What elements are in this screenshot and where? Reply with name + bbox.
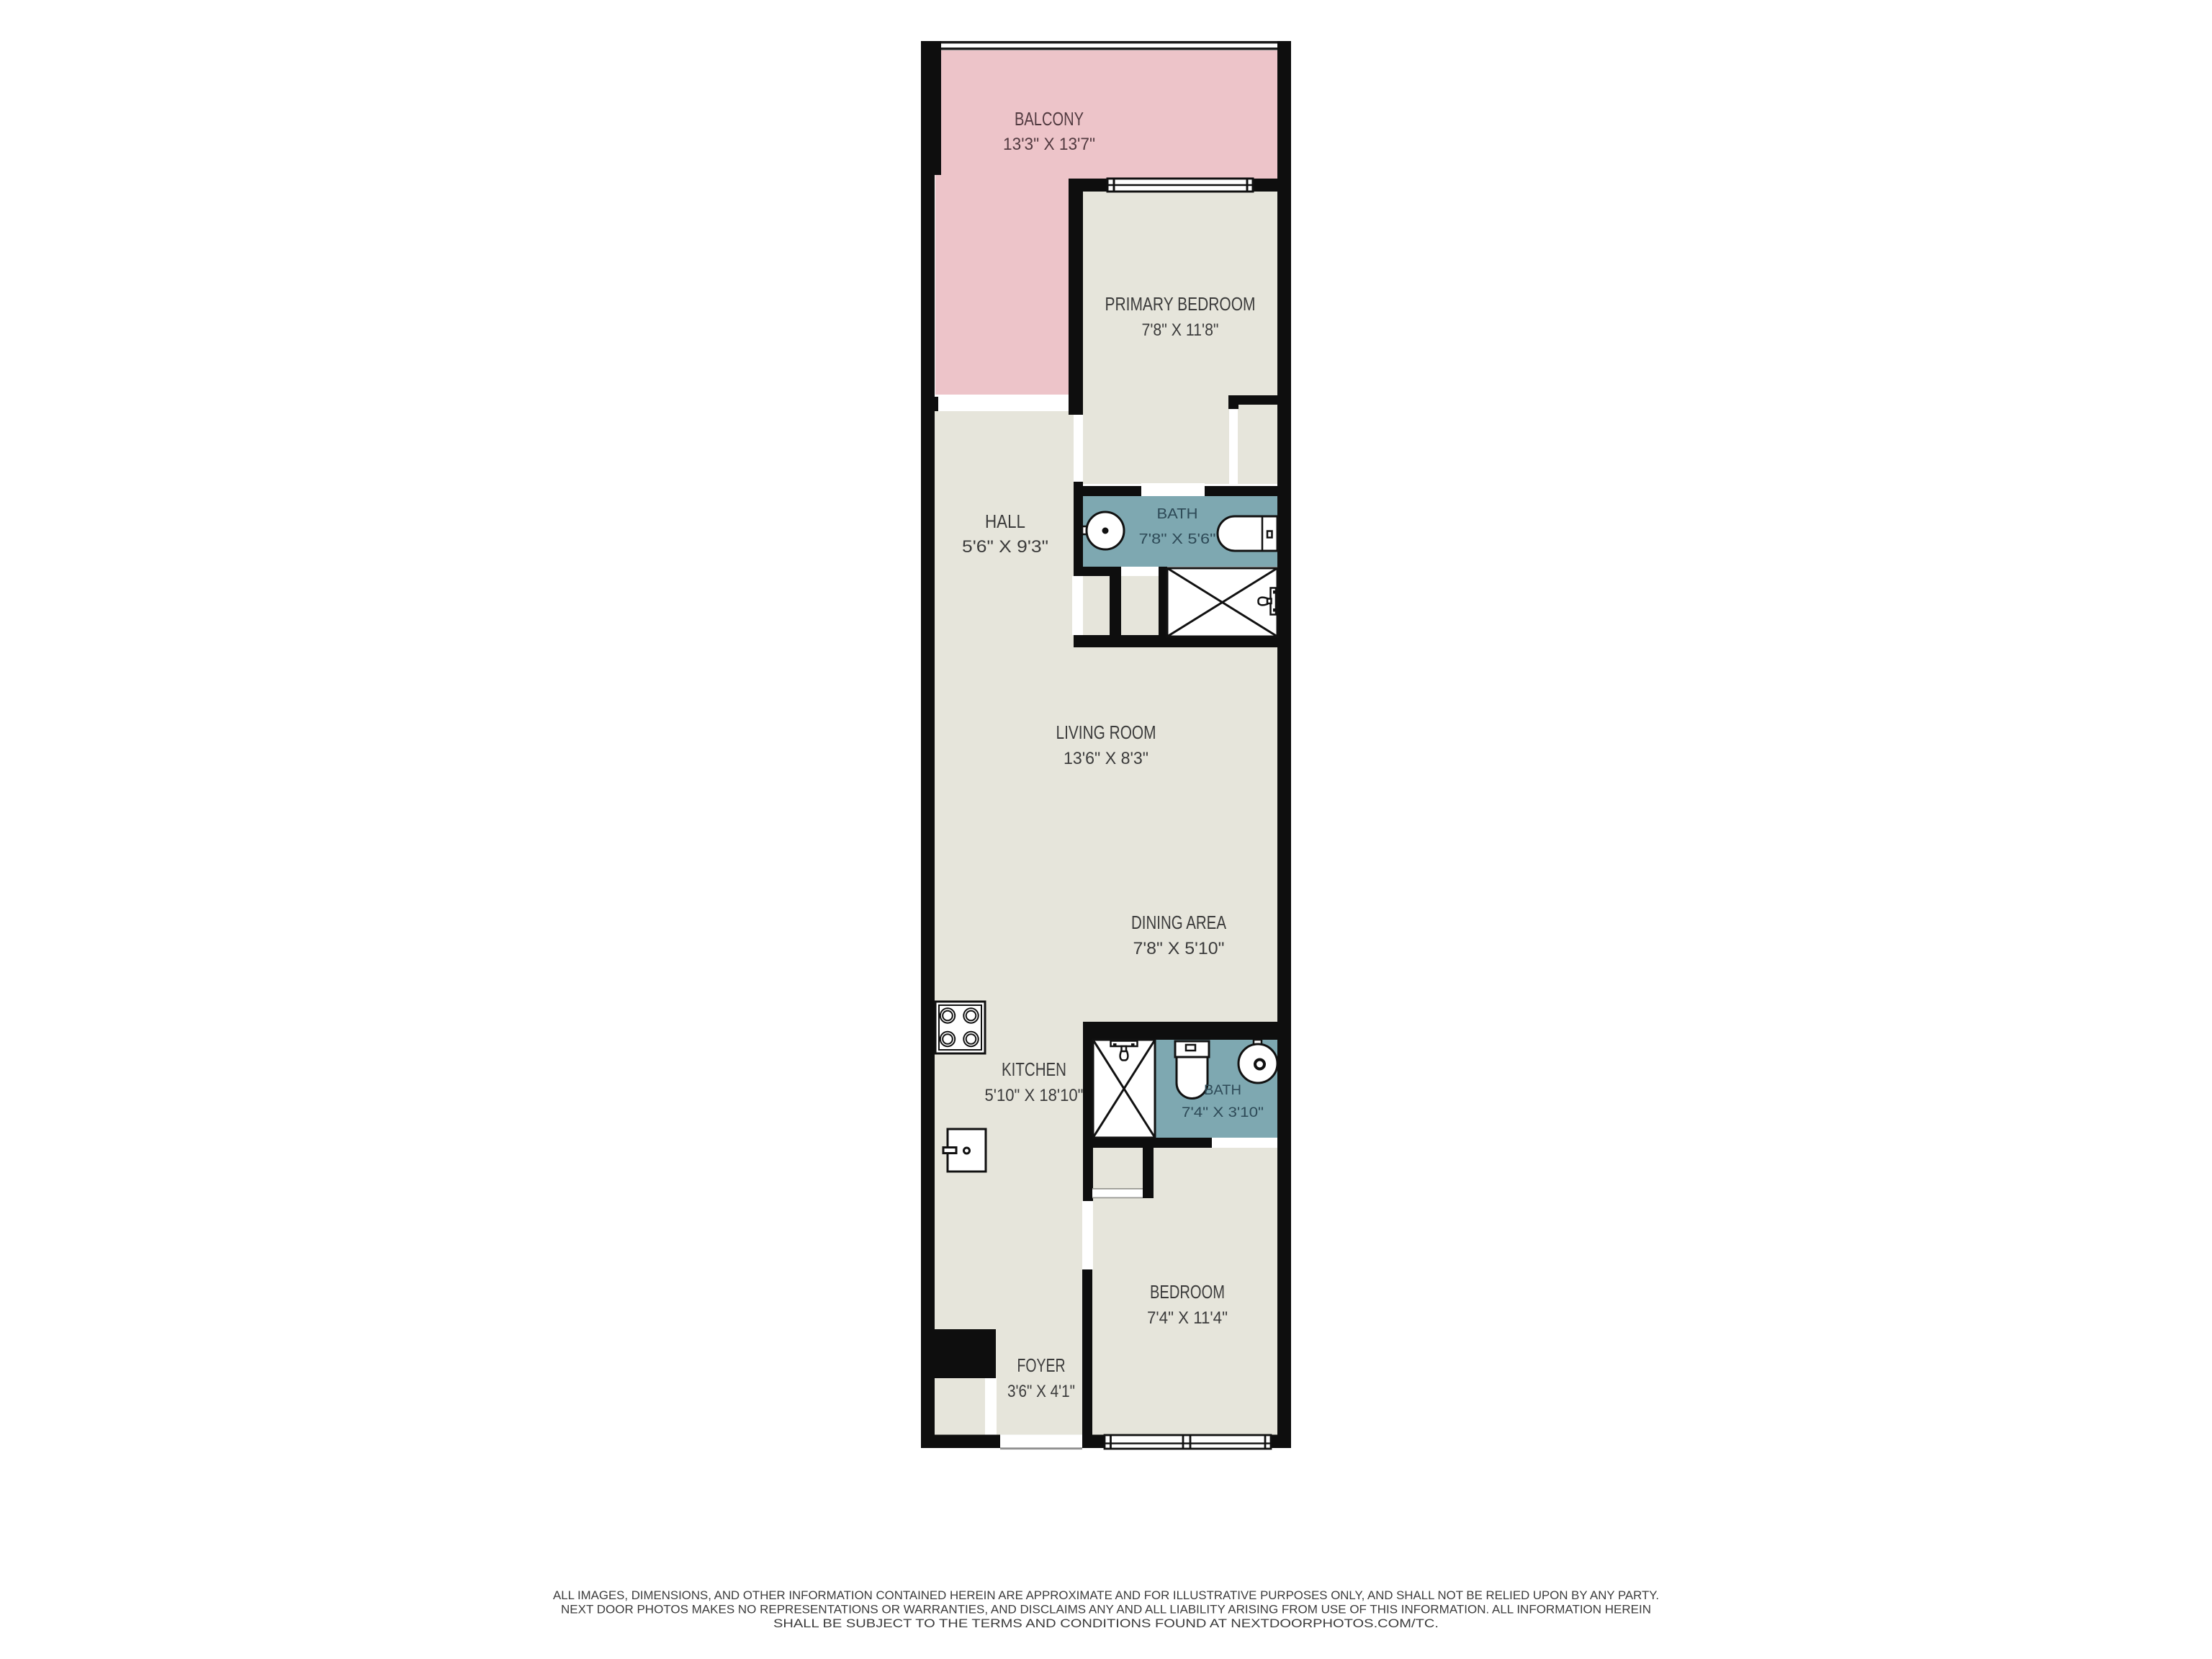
svg-text:BATH: BATH — [1204, 1083, 1241, 1098]
svg-text:KITCHEN: KITCHEN — [1002, 1058, 1066, 1080]
svg-text:7'4" X 11'4": 7'4" X 11'4" — [1147, 1308, 1228, 1328]
svg-text:BEDROOM: BEDROOM — [1150, 1281, 1225, 1303]
svg-text:SHALL BE SUBJECT TO THE TERMS: SHALL BE SUBJECT TO THE TERMS AND CONDIT… — [773, 1617, 1439, 1630]
svg-text:7'4" X 3'10": 7'4" X 3'10" — [1182, 1105, 1264, 1120]
svg-text:13'3" X 13'7": 13'3" X 13'7" — [1003, 135, 1095, 154]
svg-text:7'8" X 11'8": 7'8" X 11'8" — [1142, 320, 1219, 340]
svg-text:BALCONY: BALCONY — [1015, 108, 1084, 130]
svg-text:BATH: BATH — [1157, 506, 1198, 522]
svg-text:3'6" X 4'1": 3'6" X 4'1" — [1007, 1382, 1075, 1401]
svg-text:LIVING ROOM: LIVING ROOM — [1056, 721, 1156, 743]
svg-text:13'6" X 8'3": 13'6" X 8'3" — [1064, 749, 1148, 768]
svg-text:DINING AREA: DINING AREA — [1131, 912, 1227, 933]
svg-text:ALL IMAGES, DIMENSIONS, AND OT: ALL IMAGES, DIMENSIONS, AND OTHER INFORM… — [553, 1589, 1659, 1602]
svg-text:NEXT DOOR PHOTOS MAKES NO REPR: NEXT DOOR PHOTOS MAKES NO REPRESENTATION… — [561, 1604, 1651, 1617]
svg-text:5'10" X 18'10": 5'10" X 18'10" — [985, 1086, 1084, 1105]
svg-text:7'8" X 5'10": 7'8" X 5'10" — [1133, 939, 1225, 958]
svg-text:HALL: HALL — [985, 511, 1025, 532]
svg-text:5'6" X 9'3": 5'6" X 9'3" — [962, 537, 1048, 557]
svg-text:7'8" X 5'6": 7'8" X 5'6" — [1139, 531, 1216, 547]
svg-text:PRIMARY BEDROOM: PRIMARY BEDROOM — [1105, 293, 1256, 315]
svg-text:FOYER: FOYER — [1017, 1354, 1066, 1376]
